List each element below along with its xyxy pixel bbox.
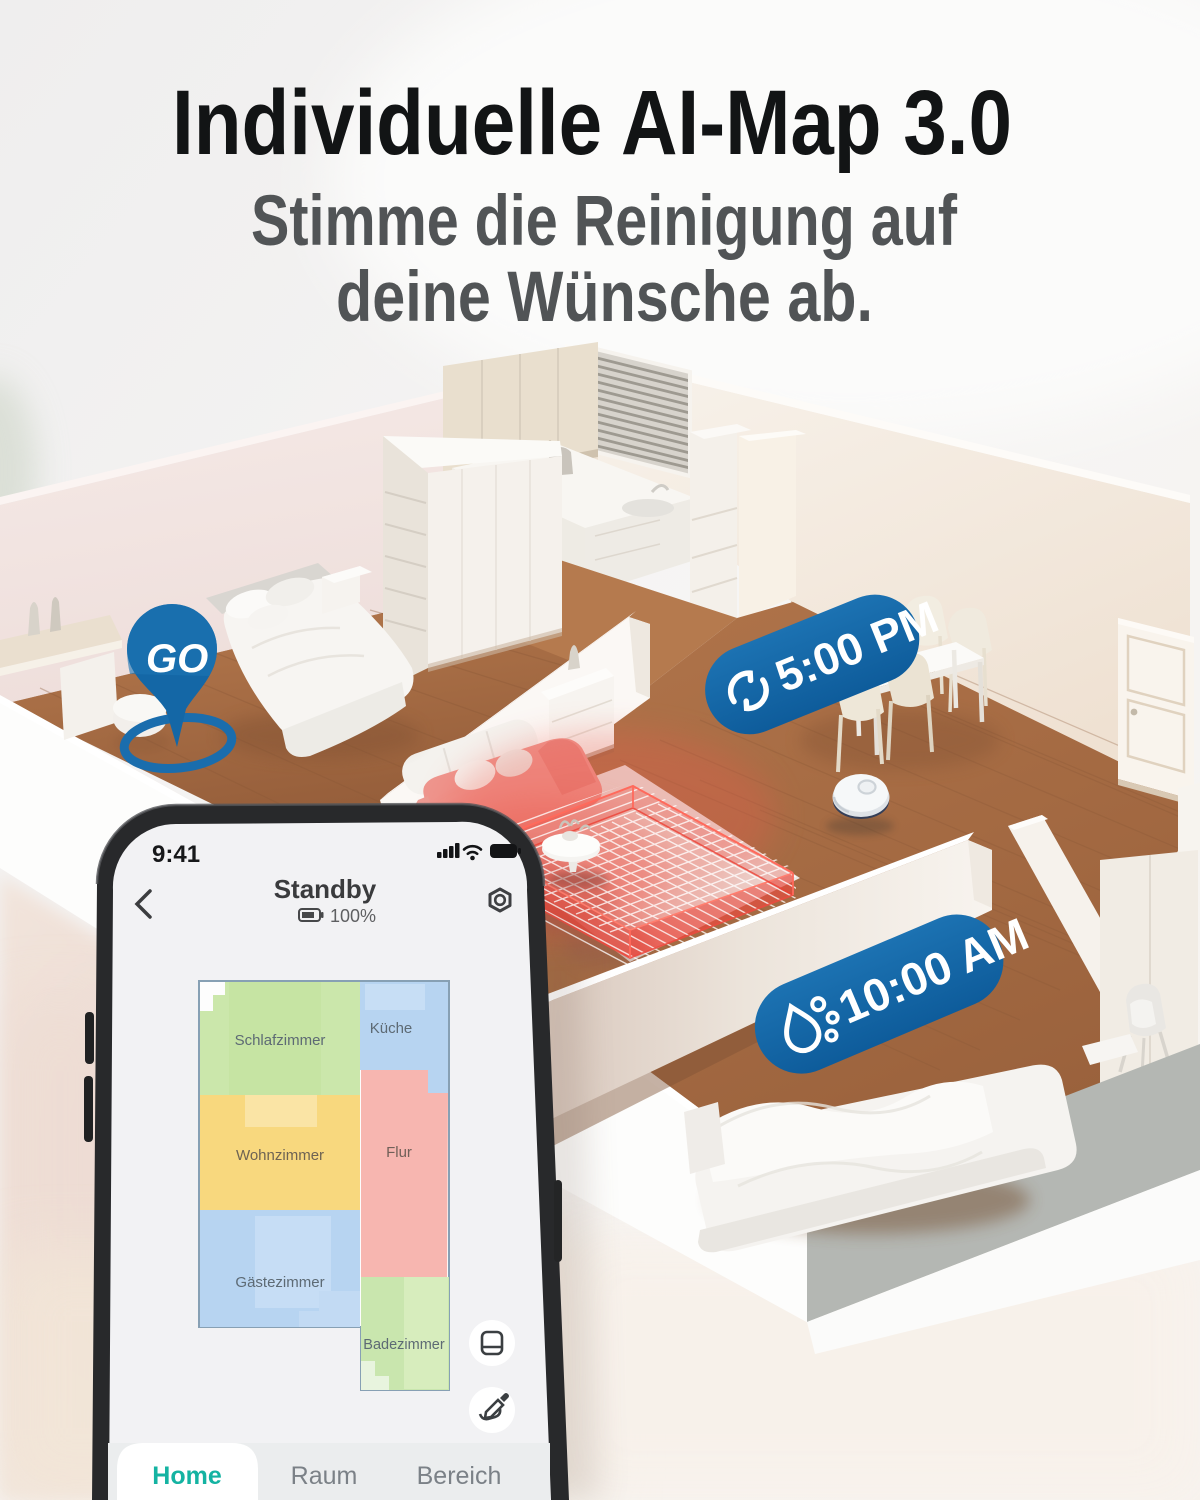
svg-text:9:41: 9:41	[152, 841, 200, 868]
svg-text:100%: 100%	[330, 906, 376, 926]
svg-text:Schlafzimmer: Schlafzimmer	[235, 1032, 326, 1049]
svg-text:Raum: Raum	[291, 1462, 358, 1490]
svg-text:Individuelle AI-Map 3.0: Individuelle AI-Map 3.0	[172, 72, 1012, 174]
svg-text:Wohnzimmer: Wohnzimmer	[236, 1147, 324, 1164]
svg-text:deine Wünsche ab.: deine Wünsche ab.	[336, 258, 873, 337]
svg-text:Bereich: Bereich	[417, 1462, 502, 1490]
svg-text:Badezimmer: Badezimmer	[363, 1337, 445, 1353]
svg-text:Home: Home	[152, 1462, 222, 1490]
svg-text:Flur: Flur	[386, 1144, 412, 1161]
svg-text:Stimme die Reinigung auf: Stimme die Reinigung auf	[251, 182, 957, 261]
svg-text:Standby: Standby	[274, 874, 377, 904]
svg-text:GO: GO	[146, 637, 208, 681]
svg-text:Gästezimmer: Gästezimmer	[235, 1274, 324, 1291]
svg-text:Küche: Küche	[370, 1020, 413, 1037]
